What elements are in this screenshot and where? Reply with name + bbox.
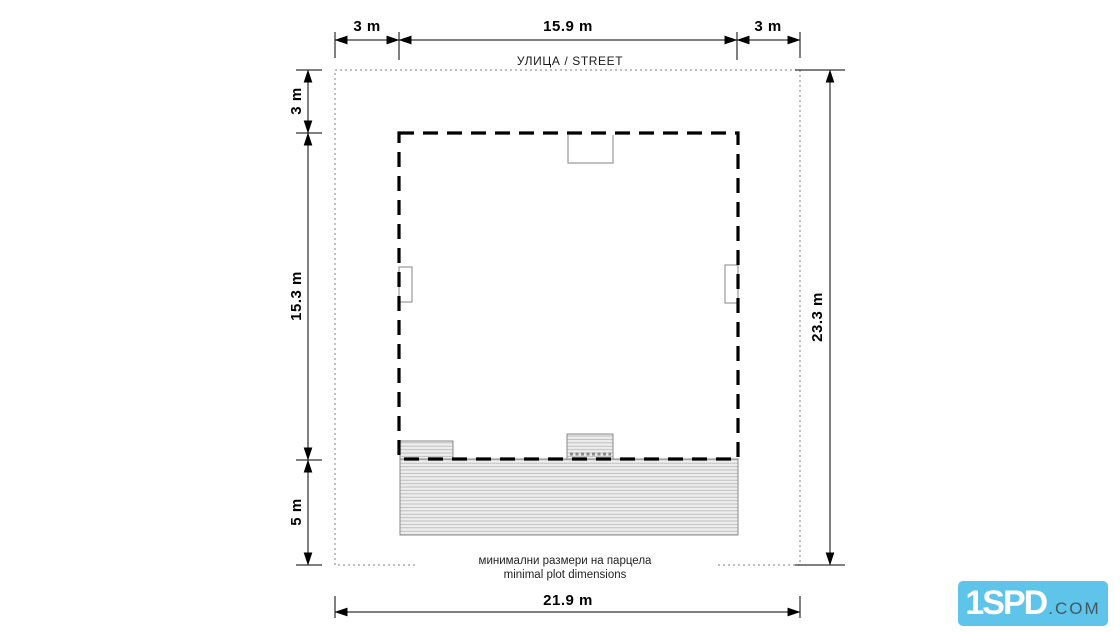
window-marker-left <box>399 267 412 302</box>
brand-logo: 1SPD .COM <box>958 581 1108 626</box>
street-label: УЛИЦА / STREET <box>470 52 670 70</box>
dim-label-left-bottom: 5 m <box>288 462 306 562</box>
logo-suffix-text: .COM <box>1048 599 1100 619</box>
dim-label-top-left: 3 m <box>307 18 427 36</box>
dim-label-top-center: 15.9 m <box>508 18 628 36</box>
dim-label-top-right: 3 m <box>708 18 828 36</box>
entrance-recess <box>568 135 613 163</box>
dim-label-left-middle: 15.3 m <box>288 246 306 346</box>
caption-english: minimal plot dimensions <box>415 569 715 582</box>
terrace-step-entry <box>567 434 613 459</box>
terrace-hatch <box>400 459 738 535</box>
window-marker-right <box>725 265 738 303</box>
building-fill <box>399 133 738 459</box>
drawing-linework <box>0 0 1120 632</box>
dim-label-right: 23.3 m <box>809 267 827 367</box>
dim-label-bottom: 21.9 m <box>508 592 628 610</box>
caption-bulgarian: минимални размери на парцела <box>415 555 715 568</box>
dim-label-left-top: 3 m <box>288 51 306 151</box>
terrace-step-left <box>400 441 453 459</box>
plot-dimensions-drawing: 3 m 15.9 m 3 m 3 m 15.3 m 5 m 23.3 m 21.… <box>0 0 1120 632</box>
logo-brand-text: 1SPD <box>965 581 1046 626</box>
